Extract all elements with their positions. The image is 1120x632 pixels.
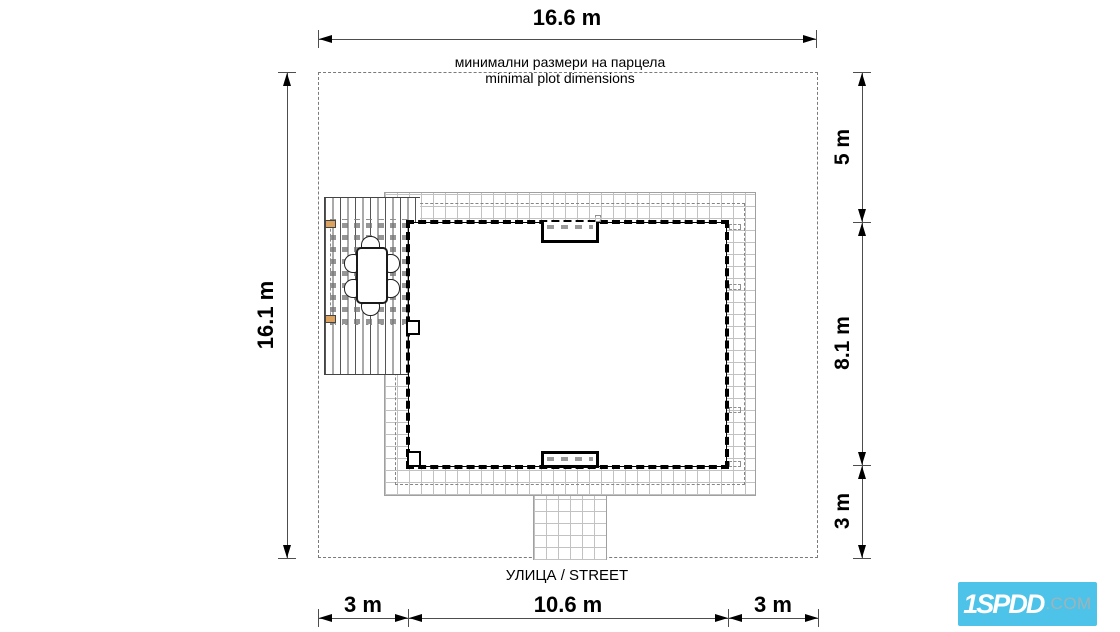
- arrowhead-down-icon: [283, 545, 291, 558]
- arrowhead-right-icon: [803, 35, 816, 43]
- dimension-line-right: [862, 72, 863, 558]
- dining-table: [356, 247, 388, 304]
- plan-title-bulgarian: минимални размери на парцела: [360, 54, 760, 70]
- arrowhead-up-icon: [858, 223, 866, 236]
- street-label: УЛИЦА / STREET: [467, 567, 667, 584]
- dimension-line-bottom: [318, 618, 818, 619]
- dimension-tick: [853, 558, 871, 559]
- arrowhead-down-icon: [858, 545, 866, 558]
- plan-title: минимални размери на парцела minimal plo…: [360, 54, 760, 86]
- dimension-label-house-width: 10.6 m: [408, 592, 728, 618]
- gutter-mark: [729, 407, 741, 413]
- gutter-mark: [729, 284, 741, 290]
- arrowhead-down-icon: [858, 452, 866, 465]
- chimney-hatch: [547, 225, 593, 229]
- dimension-label-house-depth: 8.1 m: [830, 298, 856, 388]
- dimension-line-left: [287, 72, 288, 558]
- pergola-post: [325, 220, 336, 228]
- dimension-label-setback-bottom: 3 m: [830, 466, 856, 556]
- dimension-label-plot-width: 16.6 m: [318, 5, 816, 31]
- dimension-line-top: [318, 39, 816, 40]
- pergola-post: [325, 315, 336, 323]
- dimension-label-setback-top: 5 m: [830, 102, 856, 192]
- dimension-label-plot-height: 16.1 m: [253, 270, 279, 360]
- dimension-tick: [278, 558, 296, 559]
- arrowhead-up-icon: [283, 73, 291, 86]
- site-logo: 1SPDD .COM: [958, 582, 1097, 626]
- logo-text-suffix: .COM: [1045, 594, 1091, 614]
- arrowhead-left-icon: [319, 35, 332, 43]
- plan-title-english: minimal plot dimensions: [360, 70, 760, 86]
- entrance-porch: [541, 451, 599, 468]
- wall-notch: [406, 320, 420, 335]
- wall-notch: [407, 451, 421, 467]
- street-access-path: [533, 496, 607, 560]
- logo-text-main: 1SPDD: [963, 589, 1043, 620]
- arrowhead-up-icon: [858, 466, 866, 479]
- house-wall-dashed: [406, 220, 729, 469]
- gutter-mark: [595, 215, 601, 222]
- house-outline: [408, 222, 727, 467]
- dimension-tick: [816, 30, 817, 48]
- gutter-mark: [729, 461, 741, 467]
- arrowhead-down-icon: [858, 209, 866, 222]
- site-plan-drawing: минимални размери на парцела minimal plo…: [0, 0, 1120, 632]
- dimension-label-left-setback: 3 m: [318, 592, 408, 618]
- arrowhead-up-icon: [858, 73, 866, 86]
- gutter-mark: [729, 224, 741, 230]
- dimension-tick: [818, 609, 819, 627]
- porch-hatch: [547, 457, 593, 461]
- chimney-bay: [541, 222, 599, 243]
- dimension-label-right-setback: 3 m: [728, 592, 818, 618]
